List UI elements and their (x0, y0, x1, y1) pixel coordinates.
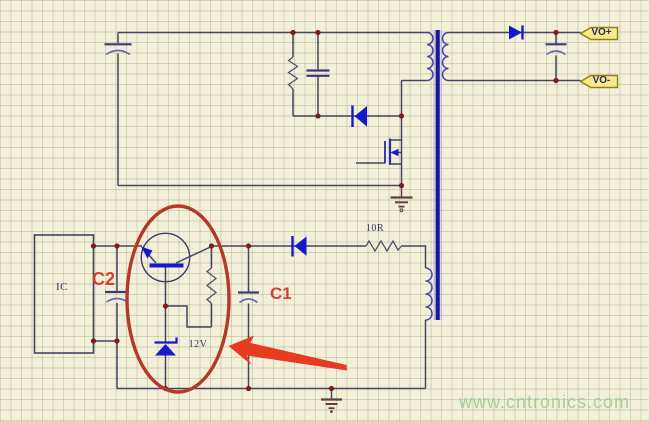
zener-diode (155, 306, 177, 389)
output-capacitor (546, 33, 567, 81)
capacitor-c2 (105, 246, 129, 389)
vo-minus-label: VO- (588, 75, 615, 86)
resistor-value-label: 10R (361, 223, 389, 234)
auxiliary-winding (426, 268, 433, 320)
input-capacitor (105, 44, 132, 54)
feedback-resistor (166, 246, 217, 327)
ground-symbol-top (391, 186, 413, 212)
c1-annotation: C1 (270, 284, 292, 304)
red-arrow-pointer (229, 336, 348, 371)
zener-value-label: 12V (184, 339, 212, 350)
transistor (141, 233, 212, 306)
vo-plus-label: VO+ (588, 27, 615, 38)
snubber-capacitor (307, 33, 330, 117)
snubber-resistor (289, 33, 298, 117)
c2-annotation: C2 (92, 269, 115, 290)
output-rectifier-diode (509, 26, 523, 40)
red-ellipse-highlight (127, 206, 229, 392)
schematic-canvas: IC 10R 12V C2 C1 VO+ VO- www.cntronics.c… (0, 0, 649, 421)
primary-winding (427, 33, 433, 81)
capacitor-c1 (238, 246, 259, 389)
secondary-winding (443, 33, 449, 81)
resistor-10r (366, 241, 402, 251)
output-wires (449, 33, 581, 81)
ic-label: IC (50, 281, 74, 293)
circuit-drawing (0, 0, 649, 421)
power-mosfet (356, 116, 402, 186)
control-ic-box (35, 235, 94, 353)
transformer (426, 30, 449, 320)
watermark-text: www.cntronics.com (459, 392, 630, 413)
clamp-diode (353, 106, 368, 128)
ground-symbol-bottom (321, 389, 342, 414)
